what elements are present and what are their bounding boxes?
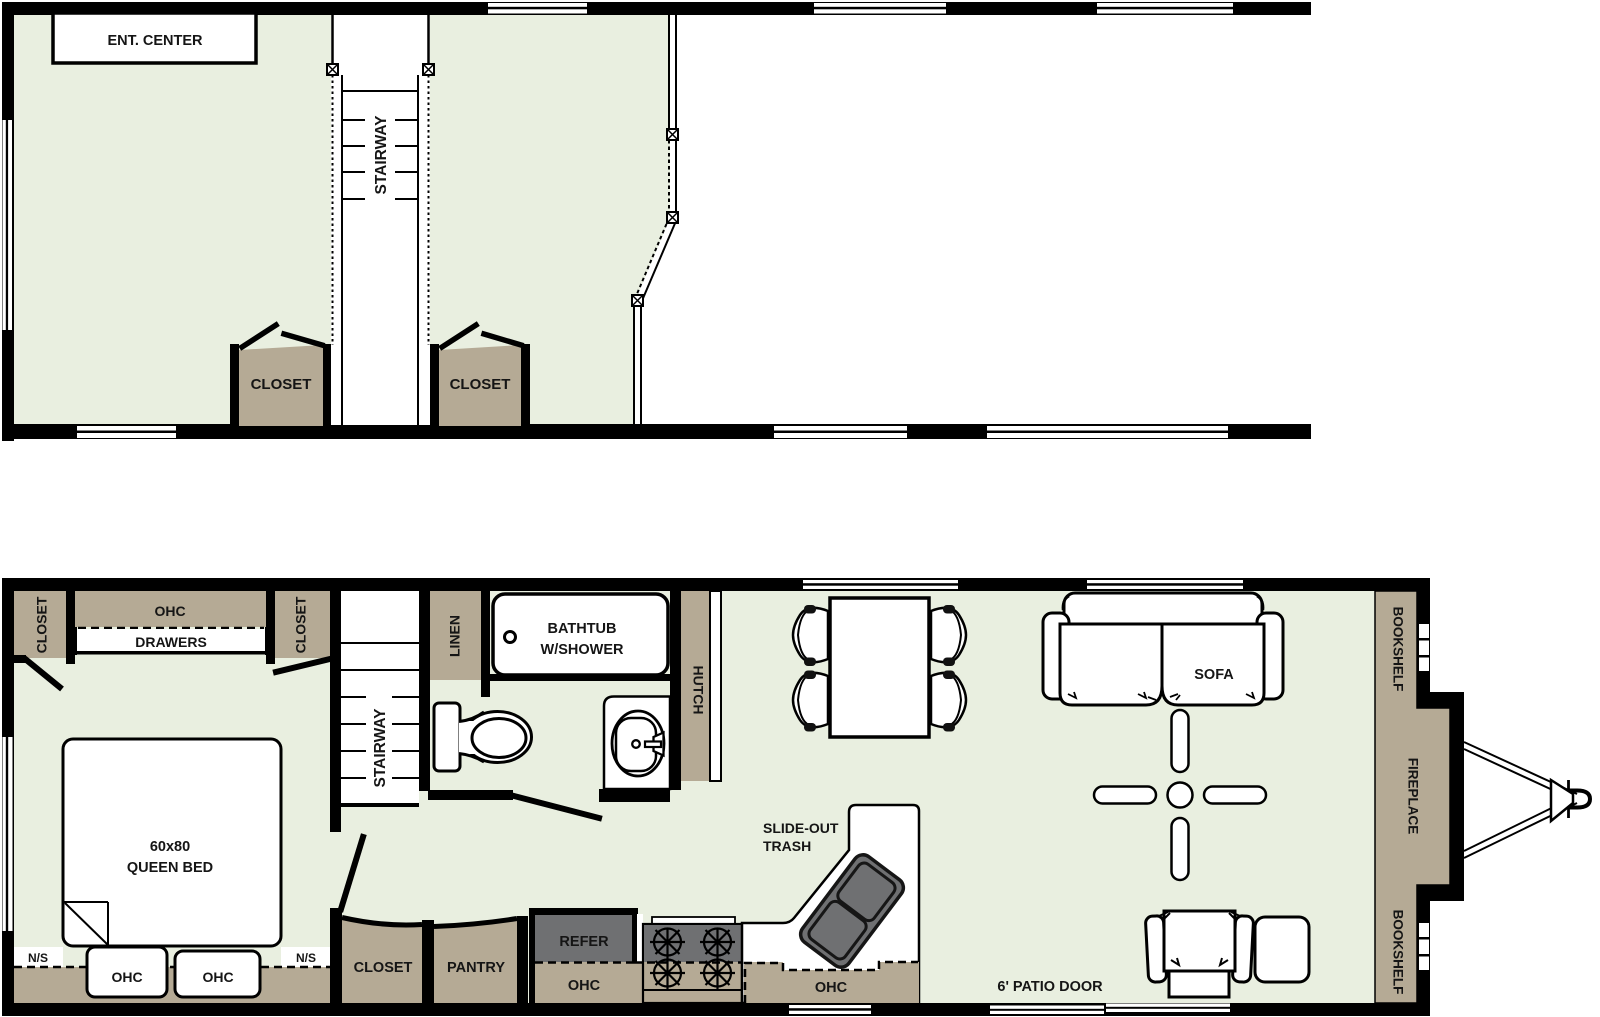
svg-text:DRAWERS: DRAWERS xyxy=(135,634,207,650)
svg-text:STAIRWAY: STAIRWAY xyxy=(372,708,389,788)
svg-text:HUTCH: HUTCH xyxy=(690,666,706,715)
svg-text:BOOKSHELF: BOOKSHELF xyxy=(1390,910,1405,995)
svg-text:N/S: N/S xyxy=(296,951,316,965)
svg-text:CLOSET: CLOSET xyxy=(354,960,413,976)
svg-text:OHC: OHC xyxy=(815,980,848,996)
svg-text:OHC: OHC xyxy=(111,969,142,985)
svg-text:OHC: OHC xyxy=(202,969,233,985)
svg-text:W/SHOWER: W/SHOWER xyxy=(541,642,624,658)
svg-text:SLIDE-OUT: SLIDE-OUT xyxy=(763,820,839,836)
svg-text:CLOSET: CLOSET xyxy=(293,596,309,653)
svg-text:OHC: OHC xyxy=(568,978,601,994)
svg-text:STAIRWAY: STAIRWAY xyxy=(373,115,390,195)
svg-text:FIREPLACE: FIREPLACE xyxy=(1405,758,1420,835)
svg-text:BATHTUB: BATHTUB xyxy=(548,621,617,637)
svg-text:TRASH: TRASH xyxy=(763,838,811,854)
svg-text:SOFA: SOFA xyxy=(1194,667,1234,683)
svg-text:LINEN: LINEN xyxy=(447,615,463,657)
svg-text:QUEEN BED: QUEEN BED xyxy=(127,860,213,876)
svg-text:REFER: REFER xyxy=(559,934,609,950)
svg-text:CLOSET: CLOSET xyxy=(34,596,50,653)
svg-text:OHC: OHC xyxy=(154,603,185,619)
svg-text:CLOSET: CLOSET xyxy=(251,376,312,393)
svg-text:BOOKSHELF: BOOKSHELF xyxy=(1390,607,1405,692)
svg-text:ENT. CENTER: ENT. CENTER xyxy=(107,33,203,49)
svg-text:60x80: 60x80 xyxy=(150,839,190,855)
svg-text:6' PATIO DOOR: 6' PATIO DOOR xyxy=(997,979,1103,995)
svg-text:PANTRY: PANTRY xyxy=(447,960,505,976)
svg-text:N/S: N/S xyxy=(28,951,48,965)
svg-text:CLOSET: CLOSET xyxy=(450,376,511,393)
